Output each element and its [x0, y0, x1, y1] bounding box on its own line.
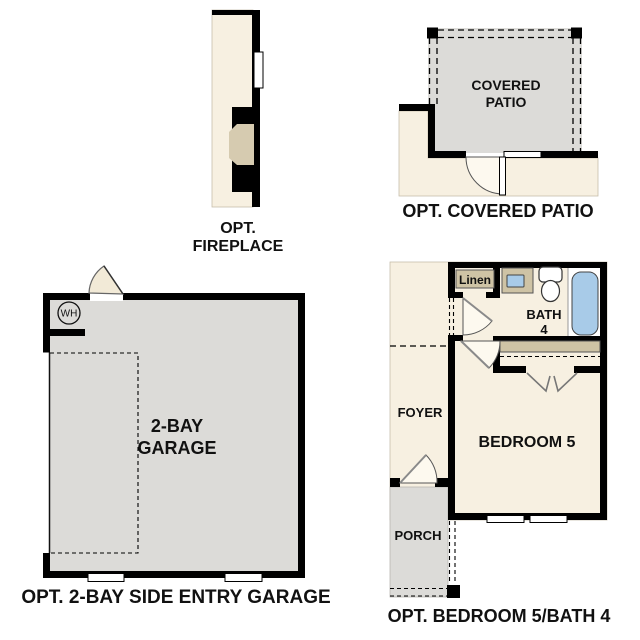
wall-segment [541, 151, 598, 158]
wall-segment [448, 262, 607, 268]
figure-covered-patio: COVERED PATIO OPT. COVERED PATIO [399, 28, 598, 222]
floorplan-canvas: OPT. FIREPLACE COVERED PATIO OPT. COVERE… [0, 0, 640, 640]
wall-segment [448, 262, 455, 298]
figure-garage: WH 2-BAY GARAGE OPT. 2-BAY SIDE ENTRY GA… [21, 266, 330, 608]
wall-segment [500, 366, 526, 373]
wall-segment [486, 292, 500, 298]
wall-segment [574, 366, 600, 373]
patio-room-label-line1: COVERED [471, 77, 540, 93]
bath-label-line2: 4 [540, 322, 548, 337]
window-symbol [88, 574, 124, 582]
window-symbol [530, 516, 567, 523]
firebox-icon [229, 124, 254, 165]
window-symbol [487, 516, 524, 523]
patio-caption: OPT. COVERED PATIO [402, 201, 593, 221]
toilet-bowl-icon [542, 281, 560, 302]
linen-label: Linen [459, 273, 491, 287]
wall-segment [455, 292, 463, 298]
wall-segment [50, 329, 85, 336]
bedroom-label: BEDROOM 5 [479, 434, 576, 451]
wall-segment [600, 262, 607, 520]
wall-segment [493, 336, 607, 341]
patio-post [571, 28, 582, 39]
fireplace-caption-line1: OPT. [220, 220, 256, 237]
porch-post [447, 585, 460, 598]
wall-segment [390, 478, 400, 487]
fireplace-caption-line2: FIREPLACE [193, 238, 284, 255]
foyer-label: FOYER [398, 405, 443, 420]
sink-icon [507, 275, 524, 287]
window-symbol [504, 152, 541, 158]
garage-room-label-line2: GARAGE [137, 438, 216, 458]
patio-room-label-line2: PATIO [486, 94, 527, 110]
patio-post [427, 28, 438, 39]
garage-room-label-line1: 2-BAY [151, 416, 203, 436]
bedroom-bath-caption: OPT. BEDROOM 5/BATH 4 [388, 606, 611, 626]
window-symbol [225, 574, 262, 582]
bathtub-icon [572, 272, 598, 335]
figure-fireplace: OPT. FIREPLACE [193, 10, 284, 255]
wall-segment [455, 335, 463, 341]
window-symbol [254, 52, 263, 88]
wall-segment [428, 151, 466, 158]
wall-segment [448, 335, 455, 520]
garage-caption: OPT. 2-BAY SIDE ENTRY GARAGE [21, 587, 330, 608]
bath-label-line1: BATH [526, 307, 561, 322]
wall-segment [428, 104, 435, 158]
wall-segment [448, 513, 607, 520]
figure-bedroom5-bath4: Linen BATH 4 FOYER PORCH [388, 262, 611, 626]
water-heater-label: WH [61, 309, 78, 320]
toilet-tank-icon [539, 267, 562, 282]
closet-shelf [500, 341, 600, 352]
door-leaf [500, 157, 506, 195]
porch-label: PORCH [395, 528, 442, 543]
floorplan-options-sheet: OPT. FIREPLACE COVERED PATIO OPT. COVERE… [0, 0, 640, 640]
